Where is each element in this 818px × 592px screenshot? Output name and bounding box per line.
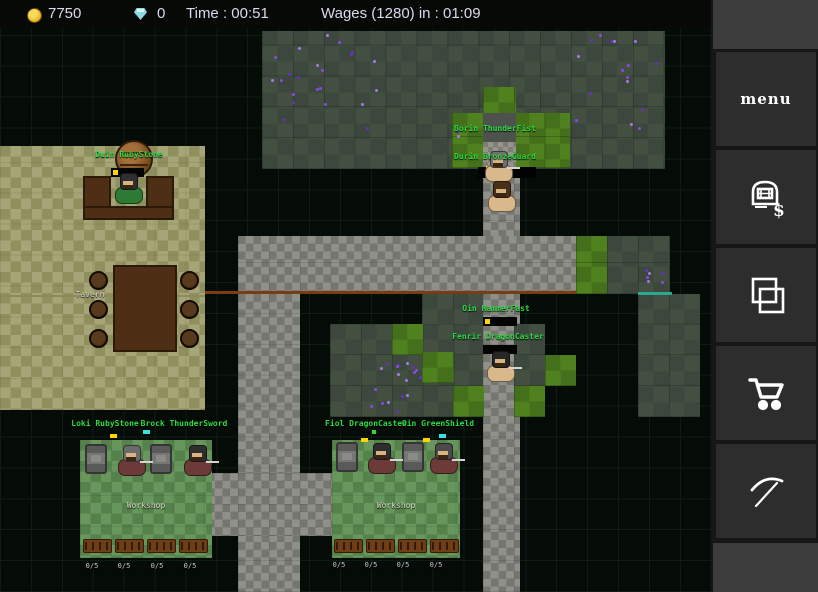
- character-name-label: Durin BronzeGuard: [454, 152, 536, 161]
- build-button[interactable]: [716, 248, 816, 342]
- ore-dot: [396, 410, 399, 413]
- prop-stool[interactable]: [89, 300, 108, 319]
- ore-dot: [274, 56, 277, 59]
- character-oin-miner[interactable]: [485, 350, 515, 382]
- sidebar-top-panel: [713, 0, 818, 49]
- ore-dot: [298, 47, 301, 50]
- ore-dot: [575, 119, 578, 122]
- pickaxe-icon: [743, 468, 789, 514]
- character-name-label: Fiol DragonCaster: [325, 419, 407, 428]
- map-region-cobble: [207, 473, 332, 536]
- status-marker: [372, 430, 376, 434]
- ore-dot: [397, 373, 400, 376]
- ore-dot: [626, 76, 629, 79]
- prop-anvil[interactable]: [402, 442, 424, 472]
- gem-icon: [134, 8, 147, 20]
- character-beard: [438, 455, 448, 459]
- ore-dot: [361, 103, 364, 106]
- teal-door-line: [638, 292, 672, 295]
- character-workshop1-smith2[interactable]: [182, 444, 212, 476]
- ore-dot: [599, 34, 602, 37]
- map-region-grass: [483, 87, 516, 115]
- ore-dot: [321, 69, 324, 72]
- held-tool: [507, 167, 520, 169]
- map-region-grass: [545, 355, 576, 386]
- character-workshop1-smith1[interactable]: [116, 444, 146, 476]
- production-counter: 0/5: [117, 562, 132, 570]
- map-region-grass: [422, 352, 454, 383]
- prop-bench[interactable]: [430, 539, 459, 553]
- prop-bench[interactable]: [179, 539, 208, 553]
- ore-cluster: [360, 353, 424, 415]
- ore-dot: [589, 92, 592, 95]
- ore-dot: [577, 55, 580, 58]
- prop-stool[interactable]: [180, 300, 199, 319]
- prop-anvil[interactable]: [150, 444, 172, 474]
- ore-dot: [373, 60, 376, 63]
- shopping-cart-icon: [743, 370, 789, 416]
- ore-cluster: [265, 33, 383, 133]
- mine-button[interactable]: [716, 444, 816, 538]
- production-counter: 0/5: [183, 562, 198, 570]
- ore-dot: [271, 79, 274, 82]
- ore-dot: [292, 93, 295, 96]
- building-label: Workshop: [377, 501, 416, 510]
- prop-stool[interactable]: [89, 329, 108, 348]
- prop-stool[interactable]: [180, 329, 199, 348]
- character-beard: [495, 363, 505, 367]
- wages-label: Wages (1280) in : 01:09: [321, 5, 481, 22]
- ore-dot: [396, 365, 399, 368]
- ore-dot: [627, 64, 630, 67]
- character-beard: [493, 163, 503, 167]
- shop-button[interactable]: [716, 346, 816, 440]
- fence-line: [205, 291, 576, 294]
- production-counter: 0/5: [364, 561, 379, 569]
- gem-amount: 0: [157, 5, 165, 22]
- production-counter: 0/5: [85, 562, 100, 570]
- production-counter: 0/5: [429, 561, 444, 569]
- ore-dot: [381, 402, 384, 405]
- sidebar-bottom-panel: [713, 543, 818, 592]
- held-tool: [140, 461, 153, 463]
- prop-anvil[interactable]: [85, 444, 107, 474]
- hire-button[interactable]: $: [716, 150, 816, 244]
- prop-wood[interactable]: [113, 265, 177, 352]
- character-name-label: Borin ThunderFist: [454, 124, 536, 133]
- gold-coin-icon: [27, 8, 42, 23]
- held-tool: [509, 367, 522, 369]
- ore-cluster: [640, 263, 670, 289]
- prop-stool[interactable]: [180, 271, 199, 290]
- status-marker: [439, 434, 446, 438]
- ore-dot: [415, 369, 418, 372]
- character-name-label: Fenrir DragonCaster: [452, 332, 544, 341]
- ore-dot: [280, 79, 283, 82]
- ore-dot: [319, 87, 322, 90]
- character-name-label: Oin GreenShield: [402, 419, 474, 428]
- prop-bench[interactable]: [366, 539, 395, 553]
- menu-button-label: menu: [740, 90, 791, 108]
- ore-dot: [621, 69, 624, 72]
- map-region-grass: [453, 386, 484, 417]
- svg-text:$: $: [773, 201, 785, 220]
- ore-dot: [419, 376, 422, 379]
- held-tool: [206, 461, 219, 463]
- ore-dot: [638, 127, 641, 130]
- character-workshop2-smith2[interactable]: [428, 442, 458, 474]
- ore-dot: [646, 276, 649, 279]
- prop-bench[interactable]: [147, 539, 176, 553]
- character-beard: [192, 457, 202, 461]
- top-resource-bar: 7750 0 Time : 00:51 Wages (1280) in : 01…: [0, 0, 711, 29]
- prop-bench[interactable]: [115, 539, 144, 553]
- status-bar: [483, 317, 517, 326]
- ore-dot: [387, 401, 390, 404]
- ore-dot: [661, 272, 664, 275]
- map-region-grass: [514, 386, 545, 417]
- ore-dot: [661, 281, 664, 284]
- ore-dot: [412, 366, 415, 369]
- ore-dot: [326, 34, 329, 37]
- prop-anvil[interactable]: [336, 442, 358, 472]
- game-map[interactable]: Duin RubyStoneBorin ThunderFistDurin Bro…: [0, 0, 711, 592]
- sidebar: menu $: [711, 0, 818, 592]
- character-name-label: Brock ThunderSword: [141, 419, 228, 428]
- status-marker: [110, 434, 117, 438]
- held-tool: [452, 459, 465, 461]
- gold-amount: 7750: [48, 5, 81, 22]
- held-tool: [390, 459, 403, 461]
- character-beard: [496, 193, 506, 197]
- ore-dot: [324, 103, 327, 106]
- character-workshop2-smith1[interactable]: [366, 442, 396, 474]
- ore-dot: [590, 39, 593, 42]
- map-region-cobble: [238, 236, 576, 294]
- ore-dot: [370, 405, 373, 408]
- prop-wood[interactable]: [83, 206, 174, 220]
- hut-dollar-icon: $: [743, 174, 789, 220]
- ore-dot: [648, 272, 651, 275]
- character-name-label: Loki RubyStone: [71, 419, 138, 428]
- ore-dot: [374, 388, 377, 391]
- ore-dot: [634, 40, 637, 43]
- building-label: Workshop: [127, 501, 166, 510]
- production-counter: 0/5: [150, 562, 165, 570]
- overlapping-squares-icon: [743, 272, 789, 318]
- character-beard: [376, 455, 386, 459]
- ore-dot: [292, 101, 295, 104]
- character-beard: [126, 457, 136, 461]
- ore-dot: [406, 394, 409, 397]
- map-region-grass: [576, 236, 607, 294]
- production-counter: 0/5: [332, 561, 347, 569]
- ore-dot: [297, 76, 300, 79]
- ore-dot: [655, 62, 658, 65]
- ore-dot: [401, 395, 404, 398]
- ore-dot: [380, 367, 383, 370]
- ore-dot: [288, 73, 291, 76]
- ore-dot: [405, 379, 408, 382]
- map-region-cobble: [238, 294, 300, 592]
- character-name-label: Oin HammerFast: [462, 304, 529, 313]
- prop-stool[interactable]: [89, 271, 108, 290]
- prop-bench[interactable]: [334, 539, 363, 553]
- time-label: Time : 00:51: [186, 5, 269, 22]
- ore-dot: [282, 118, 285, 121]
- ore-dot: [406, 362, 409, 365]
- ore-dot: [457, 135, 460, 138]
- ore-dot: [613, 40, 616, 43]
- ore-dot: [316, 64, 319, 67]
- ore-dot: [647, 280, 650, 283]
- building-label: Tavern: [76, 290, 105, 299]
- prop-bench[interactable]: [398, 539, 427, 553]
- map-region-sage: [638, 294, 700, 417]
- ore-dot: [626, 80, 629, 83]
- character-beard: [123, 185, 133, 189]
- ore-dot: [413, 371, 416, 374]
- status-marker: [143, 430, 150, 434]
- ore-dot: [386, 363, 389, 366]
- map-region-grass: [392, 324, 423, 355]
- ore-dot: [630, 123, 633, 126]
- menu-button[interactable]: menu: [716, 52, 816, 146]
- ore-dot: [375, 89, 378, 92]
- ore-dot: [641, 108, 644, 111]
- ore-dot: [366, 127, 369, 130]
- character-bartender[interactable]: [113, 172, 143, 204]
- ore-dot: [338, 41, 341, 44]
- prop-bench[interactable]: [83, 539, 112, 553]
- character-borin-thunderfist[interactable]: [486, 180, 516, 212]
- character-name-label: Duin RubyStone: [95, 150, 162, 159]
- production-counter: 0/5: [396, 561, 411, 569]
- status-bar-progress: [485, 319, 490, 324]
- game-screen: Duin RubyStoneBorin ThunderFistDurin Bro…: [0, 0, 818, 592]
- ore-cluster: [573, 33, 663, 133]
